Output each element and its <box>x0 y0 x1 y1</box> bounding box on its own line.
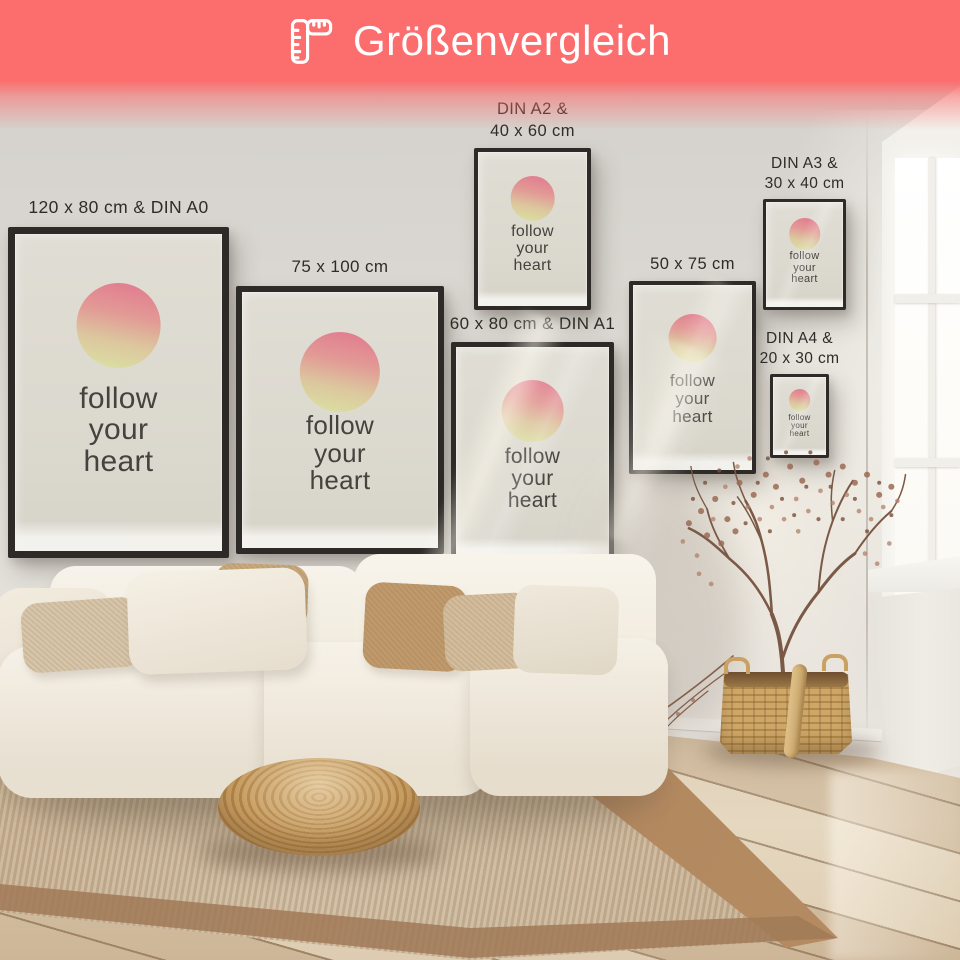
gradient-circle <box>300 332 380 412</box>
poster-size-label: 75 x 100 cm <box>291 256 388 278</box>
gradient-circle <box>668 314 717 363</box>
size-comparison-room-image: 120 x 80 cm & DIN A0 followyourheart 75 … <box>0 0 960 960</box>
poster-size-label: 120 x 80 cm & DIN A0 <box>28 196 208 219</box>
throw-pillow <box>512 584 619 676</box>
poster-bottom-band <box>15 521 222 551</box>
floor-light-patch <box>830 770 960 960</box>
poster-bottom-band <box>242 524 438 548</box>
throw-pillow <box>20 596 143 674</box>
poster-75x100: 75 x 100 cm followyourheart <box>236 286 444 554</box>
window-mullion-vertical <box>928 158 935 596</box>
basket-handle <box>724 657 750 674</box>
poster-artwork: followyourheart <box>15 234 222 551</box>
poster-bottom-band <box>766 297 843 307</box>
poster-size-label: 60 x 80 cm & DIN A1 <box>450 313 615 335</box>
window-mullion-horizontal <box>895 294 960 303</box>
banner-title: Größenvergleich <box>353 12 671 70</box>
poster-quote: followyourheart <box>766 251 843 286</box>
poster-120x80-din-a0: 120 x 80 cm & DIN A0 followyourheart <box>8 227 229 558</box>
poster-frame: followyourheart <box>763 199 846 310</box>
poster-artwork: followyourheart <box>242 292 438 548</box>
gradient-circle <box>76 283 161 368</box>
poster-size-label: DIN A4 &20 x 30 cm <box>760 329 840 369</box>
size-comparison-banner: Größenvergleich <box>0 0 960 130</box>
poster-din-a3-30x40: DIN A3 &30 x 40 cm followyourheart <box>763 199 846 310</box>
poster-artwork: followyourheart <box>456 347 609 558</box>
poster-artwork: followyourheart <box>766 202 843 307</box>
poster-quote: followyourheart <box>456 446 609 512</box>
poster-quote: followyourheart <box>242 412 438 494</box>
ruler-icon <box>289 15 335 67</box>
gradient-circle <box>510 176 555 221</box>
poster-frame: followyourheart <box>451 342 614 563</box>
poster-size-label: 50 x 75 cm <box>650 254 735 275</box>
poster-frame: followyourheart <box>474 148 591 310</box>
throw-pillow <box>126 567 307 675</box>
poster-frame: followyourheart <box>8 227 229 558</box>
poster-bottom-band <box>478 291 587 306</box>
woven-pouf <box>218 758 420 856</box>
poster-quote: followyourheart <box>15 383 222 478</box>
gradient-circle <box>501 380 564 443</box>
poster-quote: followyourheart <box>633 372 752 426</box>
basket-handle <box>822 654 848 671</box>
poster-size-label: DIN A3 &30 x 40 cm <box>765 154 845 194</box>
poster-din-a2-40x60: DIN A2 &40 x 60 cm followyourheart <box>474 148 591 310</box>
basket-opening <box>724 672 848 687</box>
poster-quote: followyourheart <box>478 224 587 274</box>
poster-frame: followyourheart <box>236 286 444 554</box>
poster-60x80-din-a1: 60 x 80 cm & DIN A1 followyourheart <box>451 342 614 563</box>
gradient-circle <box>789 218 821 250</box>
banner-content: Größenvergleich <box>289 12 671 70</box>
poster-artwork: followyourheart <box>478 152 587 306</box>
gradient-circle <box>789 389 811 411</box>
